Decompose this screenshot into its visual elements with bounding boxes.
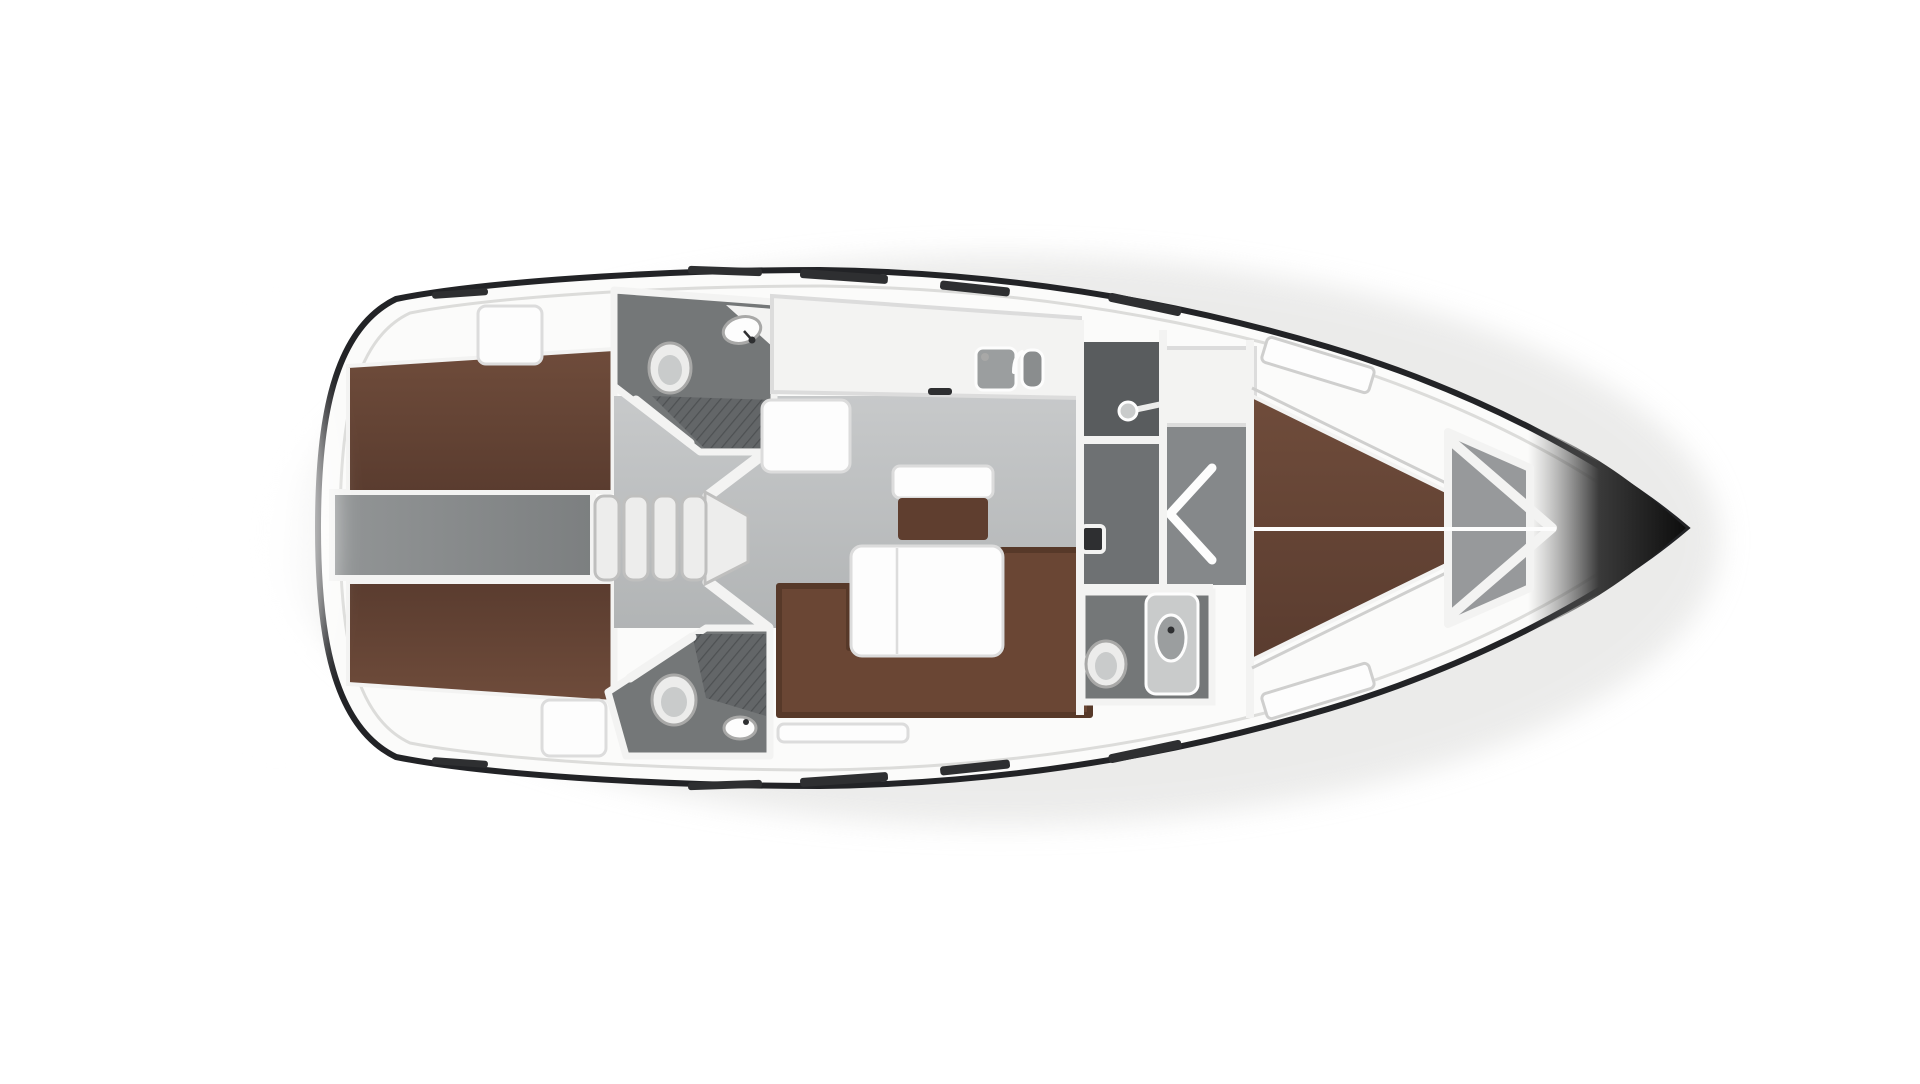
forward-head	[1082, 592, 1212, 702]
companionway-step	[624, 496, 648, 580]
wardrobe	[1083, 342, 1163, 440]
engine-compartment	[332, 492, 593, 578]
yacht-deck-plan	[0, 0, 1920, 1084]
galley-sink-icon	[976, 348, 1043, 390]
salon-table	[851, 546, 1003, 656]
deck-plan-canvas	[0, 0, 1920, 1084]
galley-vent	[928, 388, 952, 395]
companionway-step	[595, 496, 619, 580]
toilet-icon	[652, 675, 696, 725]
sink-icon	[724, 717, 756, 739]
companionway-step	[653, 496, 677, 580]
aft-cabin-starboard-wardrobe	[542, 700, 606, 756]
aft-cabin-starboard-berth	[348, 582, 614, 702]
door-latch	[1082, 526, 1104, 552]
cockpit-locker-slat	[778, 724, 908, 742]
island-seat	[893, 466, 993, 540]
aft-cabin-port-berth	[348, 349, 614, 492]
toilet-icon	[1086, 641, 1126, 687]
chart-table	[762, 400, 850, 472]
stern-glow	[204, 298, 348, 758]
corridor-floor	[1083, 440, 1163, 588]
shower-counter	[1165, 348, 1255, 425]
aft-cabin-port-wardrobe	[478, 306, 542, 364]
toilet-icon	[649, 343, 691, 393]
companionway-step	[682, 496, 706, 580]
vanity-sink-icon	[1146, 594, 1198, 694]
